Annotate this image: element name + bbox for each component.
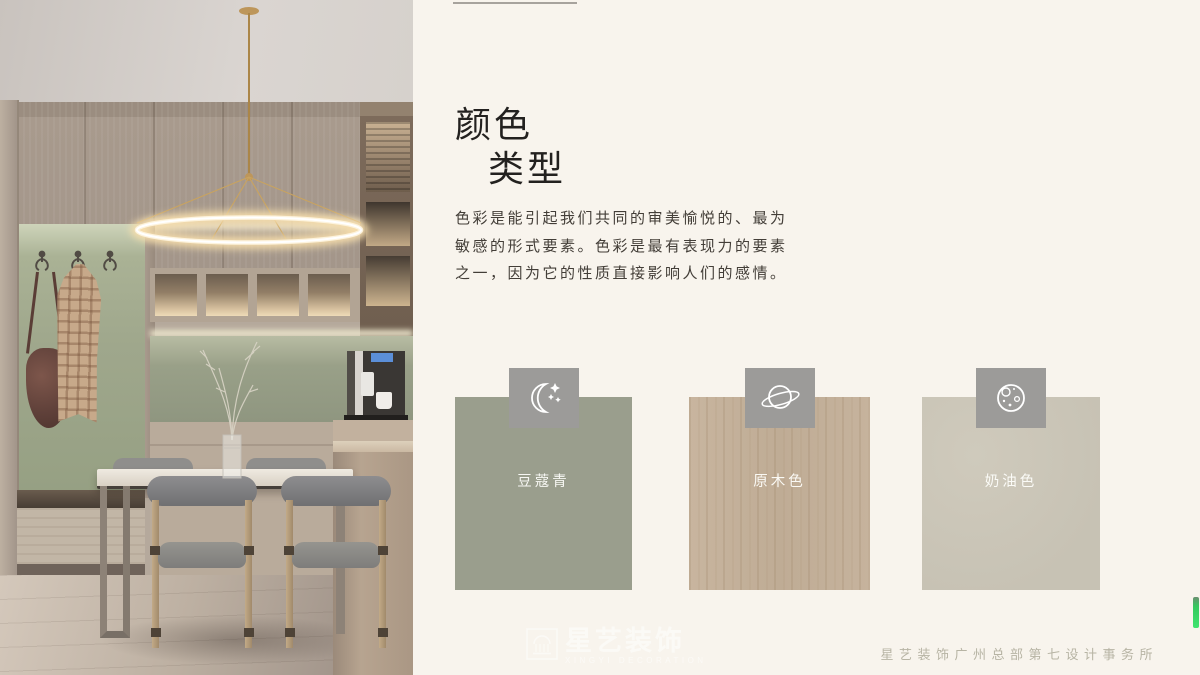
plaid-coat <box>54 263 102 422</box>
footer-credit: 星艺装饰广州总部第七设计事务所 <box>880 644 1158 663</box>
swatch-icon-tile <box>745 368 815 428</box>
chair-joint <box>244 546 254 555</box>
edge-scroll-indicator[interactable] <box>1193 597 1199 628</box>
coffee-cup <box>376 392 392 409</box>
color-swatch-cardamom: 豆蔻青 <box>455 397 632 590</box>
brand-watermark: 星艺装饰 XINGYI DECORATION <box>526 628 707 665</box>
dining-chair <box>279 476 393 650</box>
chair-joint <box>378 628 388 637</box>
swatch-icon-tile <box>976 368 1046 428</box>
swatch-label: 奶油色 <box>922 470 1100 491</box>
cubby <box>155 274 197 316</box>
chair-seat <box>292 542 380 568</box>
brand-name-en: XINGYI DECORATION <box>565 656 707 665</box>
color-swatch-cream: 奶油色 <box>922 397 1100 590</box>
machine-canister <box>361 372 374 396</box>
machine-screen <box>371 353 393 362</box>
slide: 颜色 类型 色彩是能引起我们共同的审美愉悦的、最为敏感的形式要素。色彩是最有表现… <box>0 0 1200 675</box>
top-accent-line <box>453 2 577 4</box>
under-cabinet-glow <box>148 221 362 230</box>
shelf-niche <box>366 256 410 306</box>
cubby <box>308 274 350 316</box>
swatch-icon-tile <box>509 368 579 428</box>
chair-post <box>286 500 293 648</box>
dining-chair <box>145 476 259 650</box>
chair-post <box>152 500 159 648</box>
page-title-line2: 类型 <box>488 147 566 191</box>
table-leg-frame <box>100 486 130 638</box>
chair-seat <box>158 542 246 568</box>
swatch-label: 豆蔻青 <box>455 470 632 491</box>
moon-stars-icon <box>522 376 566 420</box>
shelf-niche <box>366 202 410 246</box>
color-swatch-wood: 原木色 <box>689 397 870 590</box>
chair-joint <box>378 546 388 555</box>
chair-joint <box>150 546 160 555</box>
cubby <box>257 274 299 316</box>
interior-photo <box>0 0 413 675</box>
chair-joint <box>284 546 294 555</box>
chair-joint <box>285 628 295 637</box>
brand-name: 星艺装饰 <box>565 628 707 655</box>
chair-post <box>379 500 386 648</box>
page-title-line1: 颜色 <box>455 103 566 147</box>
intro-paragraph: 色彩是能引起我们共同的审美愉悦的、最为敏感的形式要素。色彩是最有表现力的要素之一… <box>455 206 795 289</box>
planet-icon <box>758 376 802 420</box>
chair-backrest <box>147 476 257 506</box>
brand-logo-icon <box>526 628 558 660</box>
cratered-moon-icon <box>989 376 1033 420</box>
chair-post <box>245 500 252 648</box>
shelf-niche <box>366 122 410 192</box>
swatch-label: 原木色 <box>689 470 870 491</box>
ceiling <box>0 0 413 105</box>
page-title: 颜色 类型 <box>455 103 566 191</box>
cubby <box>206 274 248 316</box>
chair-backrest <box>281 476 391 506</box>
chair-joint <box>244 628 254 637</box>
counter-shelf <box>333 420 413 442</box>
chair-joint <box>151 628 161 637</box>
